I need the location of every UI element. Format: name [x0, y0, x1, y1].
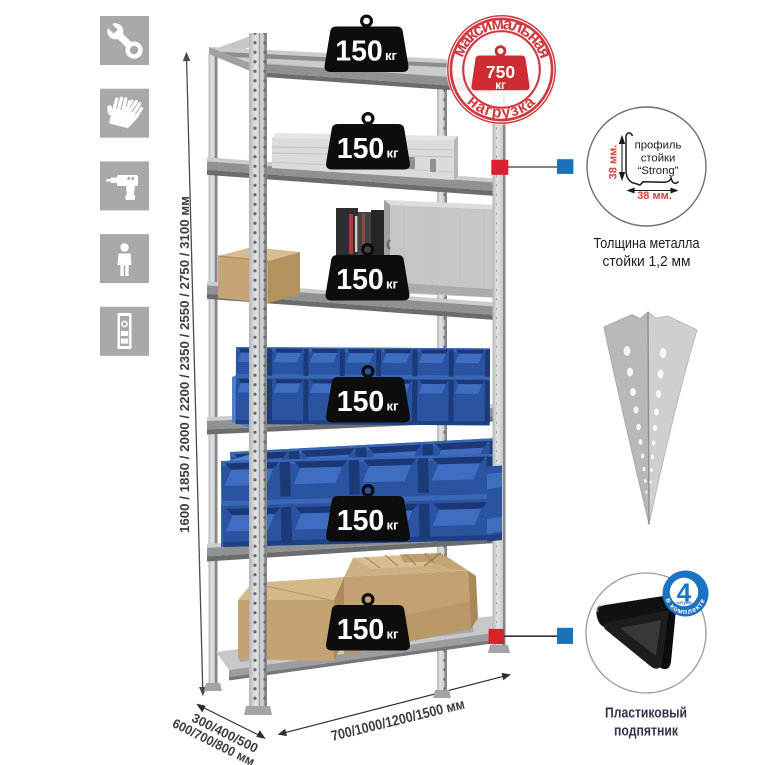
svg-text:профиль: профиль: [635, 140, 682, 152]
svg-text:штуки: штуки: [677, 600, 691, 605]
svg-text:“Strong”: “Strong”: [638, 165, 679, 177]
svg-text:750: 750: [486, 62, 515, 82]
svg-text:кг: кг: [495, 80, 506, 92]
svg-text:38 мм.: 38 мм.: [637, 190, 672, 202]
svg-text:стойки: стойки: [641, 153, 676, 165]
svg-text:Толщина металла: Толщина металла: [594, 236, 701, 252]
svg-text:38 мм.: 38 мм.: [608, 145, 620, 180]
svg-text:подпятник: подпятник: [614, 723, 678, 740]
svg-text:стойки 1,2 мм: стойки 1,2 мм: [603, 254, 691, 270]
svg-text:Пластиковый: Пластиковый: [605, 705, 687, 722]
svg-text:1600 / 1850 / 2000 / 2200 / 23: 1600 / 1850 / 2000 / 2200 / 2350 / 2550 …: [177, 196, 192, 533]
